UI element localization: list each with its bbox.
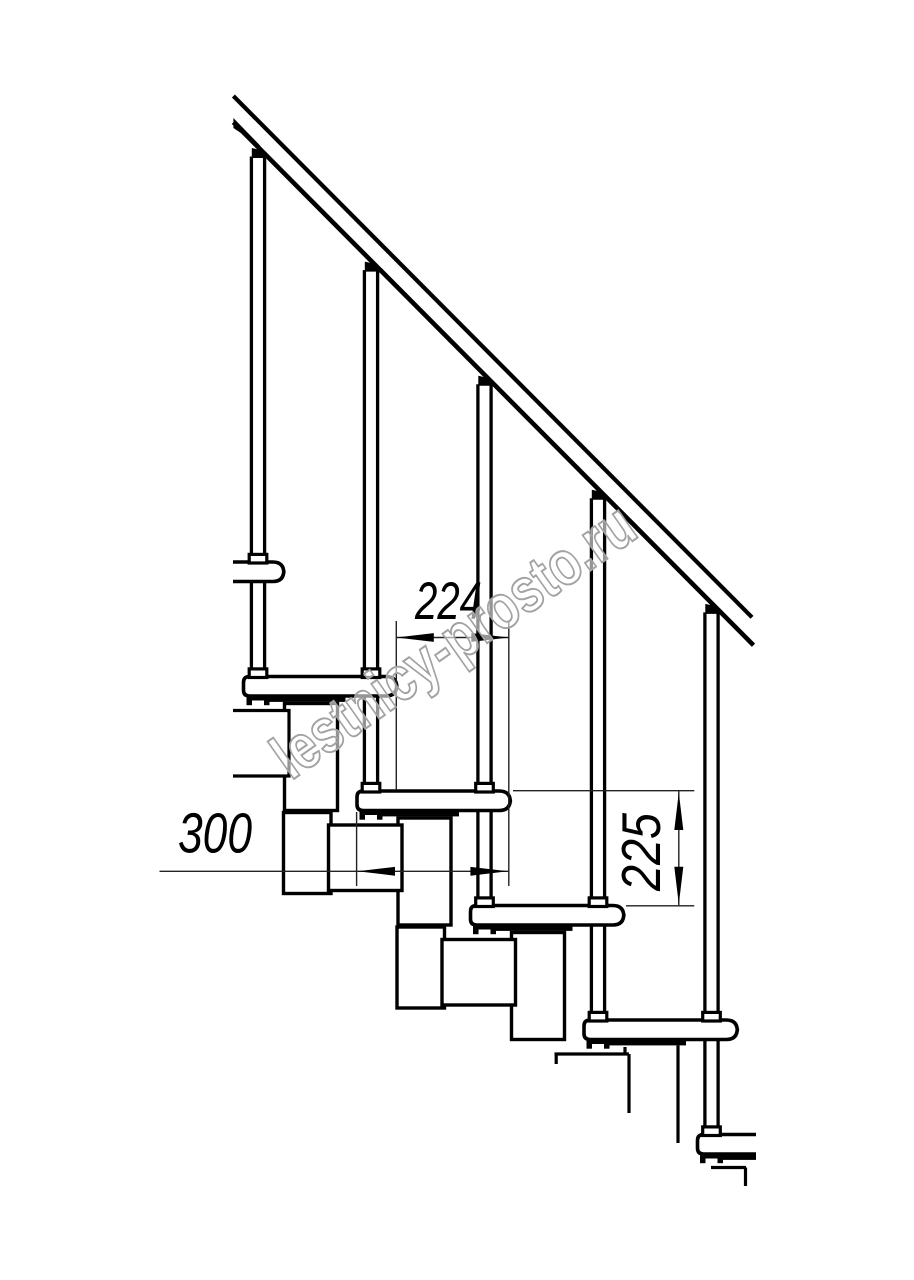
svg-text:300: 300 — [178, 802, 252, 866]
svg-text:225: 225 — [610, 813, 672, 892]
